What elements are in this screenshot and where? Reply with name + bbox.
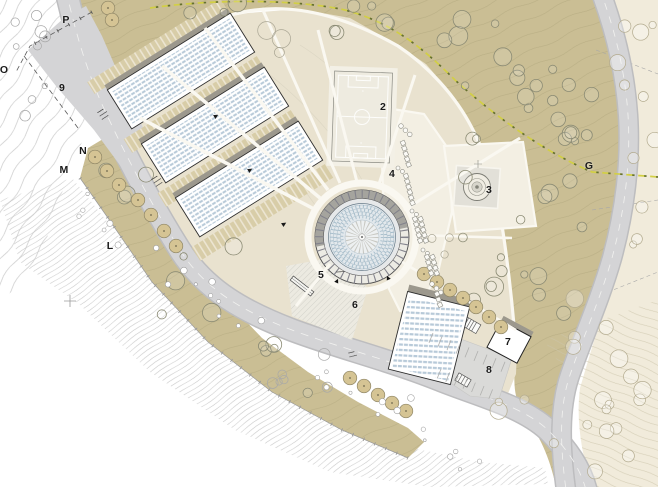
annotation-line: ▪▪▪▪▪▪▪▪▪▪ — [336, 270, 345, 274]
area-label-4: 4 — [389, 168, 395, 180]
area-label-5: 5 — [318, 269, 324, 281]
area-label-3: 3 — [486, 184, 492, 196]
area-label-6: 6 — [352, 299, 358, 311]
letter-label-M: M — [60, 164, 69, 176]
area-label-7: 7 — [505, 336, 511, 348]
letter-label-N: N — [79, 145, 87, 157]
letter-label-L: L — [107, 240, 114, 252]
annotation-line: ▪▪▪▪▪▪▪▪▪ — [349, 354, 357, 360]
letter-label-P: P — [62, 14, 69, 26]
area-label-2: 2 — [380, 101, 386, 113]
plan-annotation: ▪▪▪▪▪▪▪▪▪▪▪▪▪▪▪▪▪▪▪▪▪▪▪▪▪▪▪ — [97, 107, 111, 121]
plan-annotation: ▪▪▪▪▪▪▪▪▪▪ — [336, 270, 345, 274]
letter-label-O: O — [0, 64, 8, 76]
area-label-9: 9 — [59, 82, 65, 94]
site-plan: 23456789PONMLG▪▪▪▪▪▪▪▪▪▪▪▪▪▪▪▪▪▪▪▪▪▪▪▪▪▪… — [0, 0, 658, 487]
area-label-8: 8 — [486, 364, 492, 376]
plan-annotation: ▪▪▪▪▪▪▪▪▪▪▪▪▪▪▪▪ — [348, 350, 357, 359]
plan-annotation: ▪▪▪▪▪▪▪▪▪▪▪▪▪▪▪▪▪▪▪▪▪▪▪▪▪▪▪ — [151, 174, 165, 188]
letter-label-G: G — [585, 160, 593, 172]
labels-layer: 23456789PONMLG▪▪▪▪▪▪▪▪▪▪▪▪▪▪▪▪▪▪▪▪▪▪▪▪▪▪… — [0, 0, 658, 487]
